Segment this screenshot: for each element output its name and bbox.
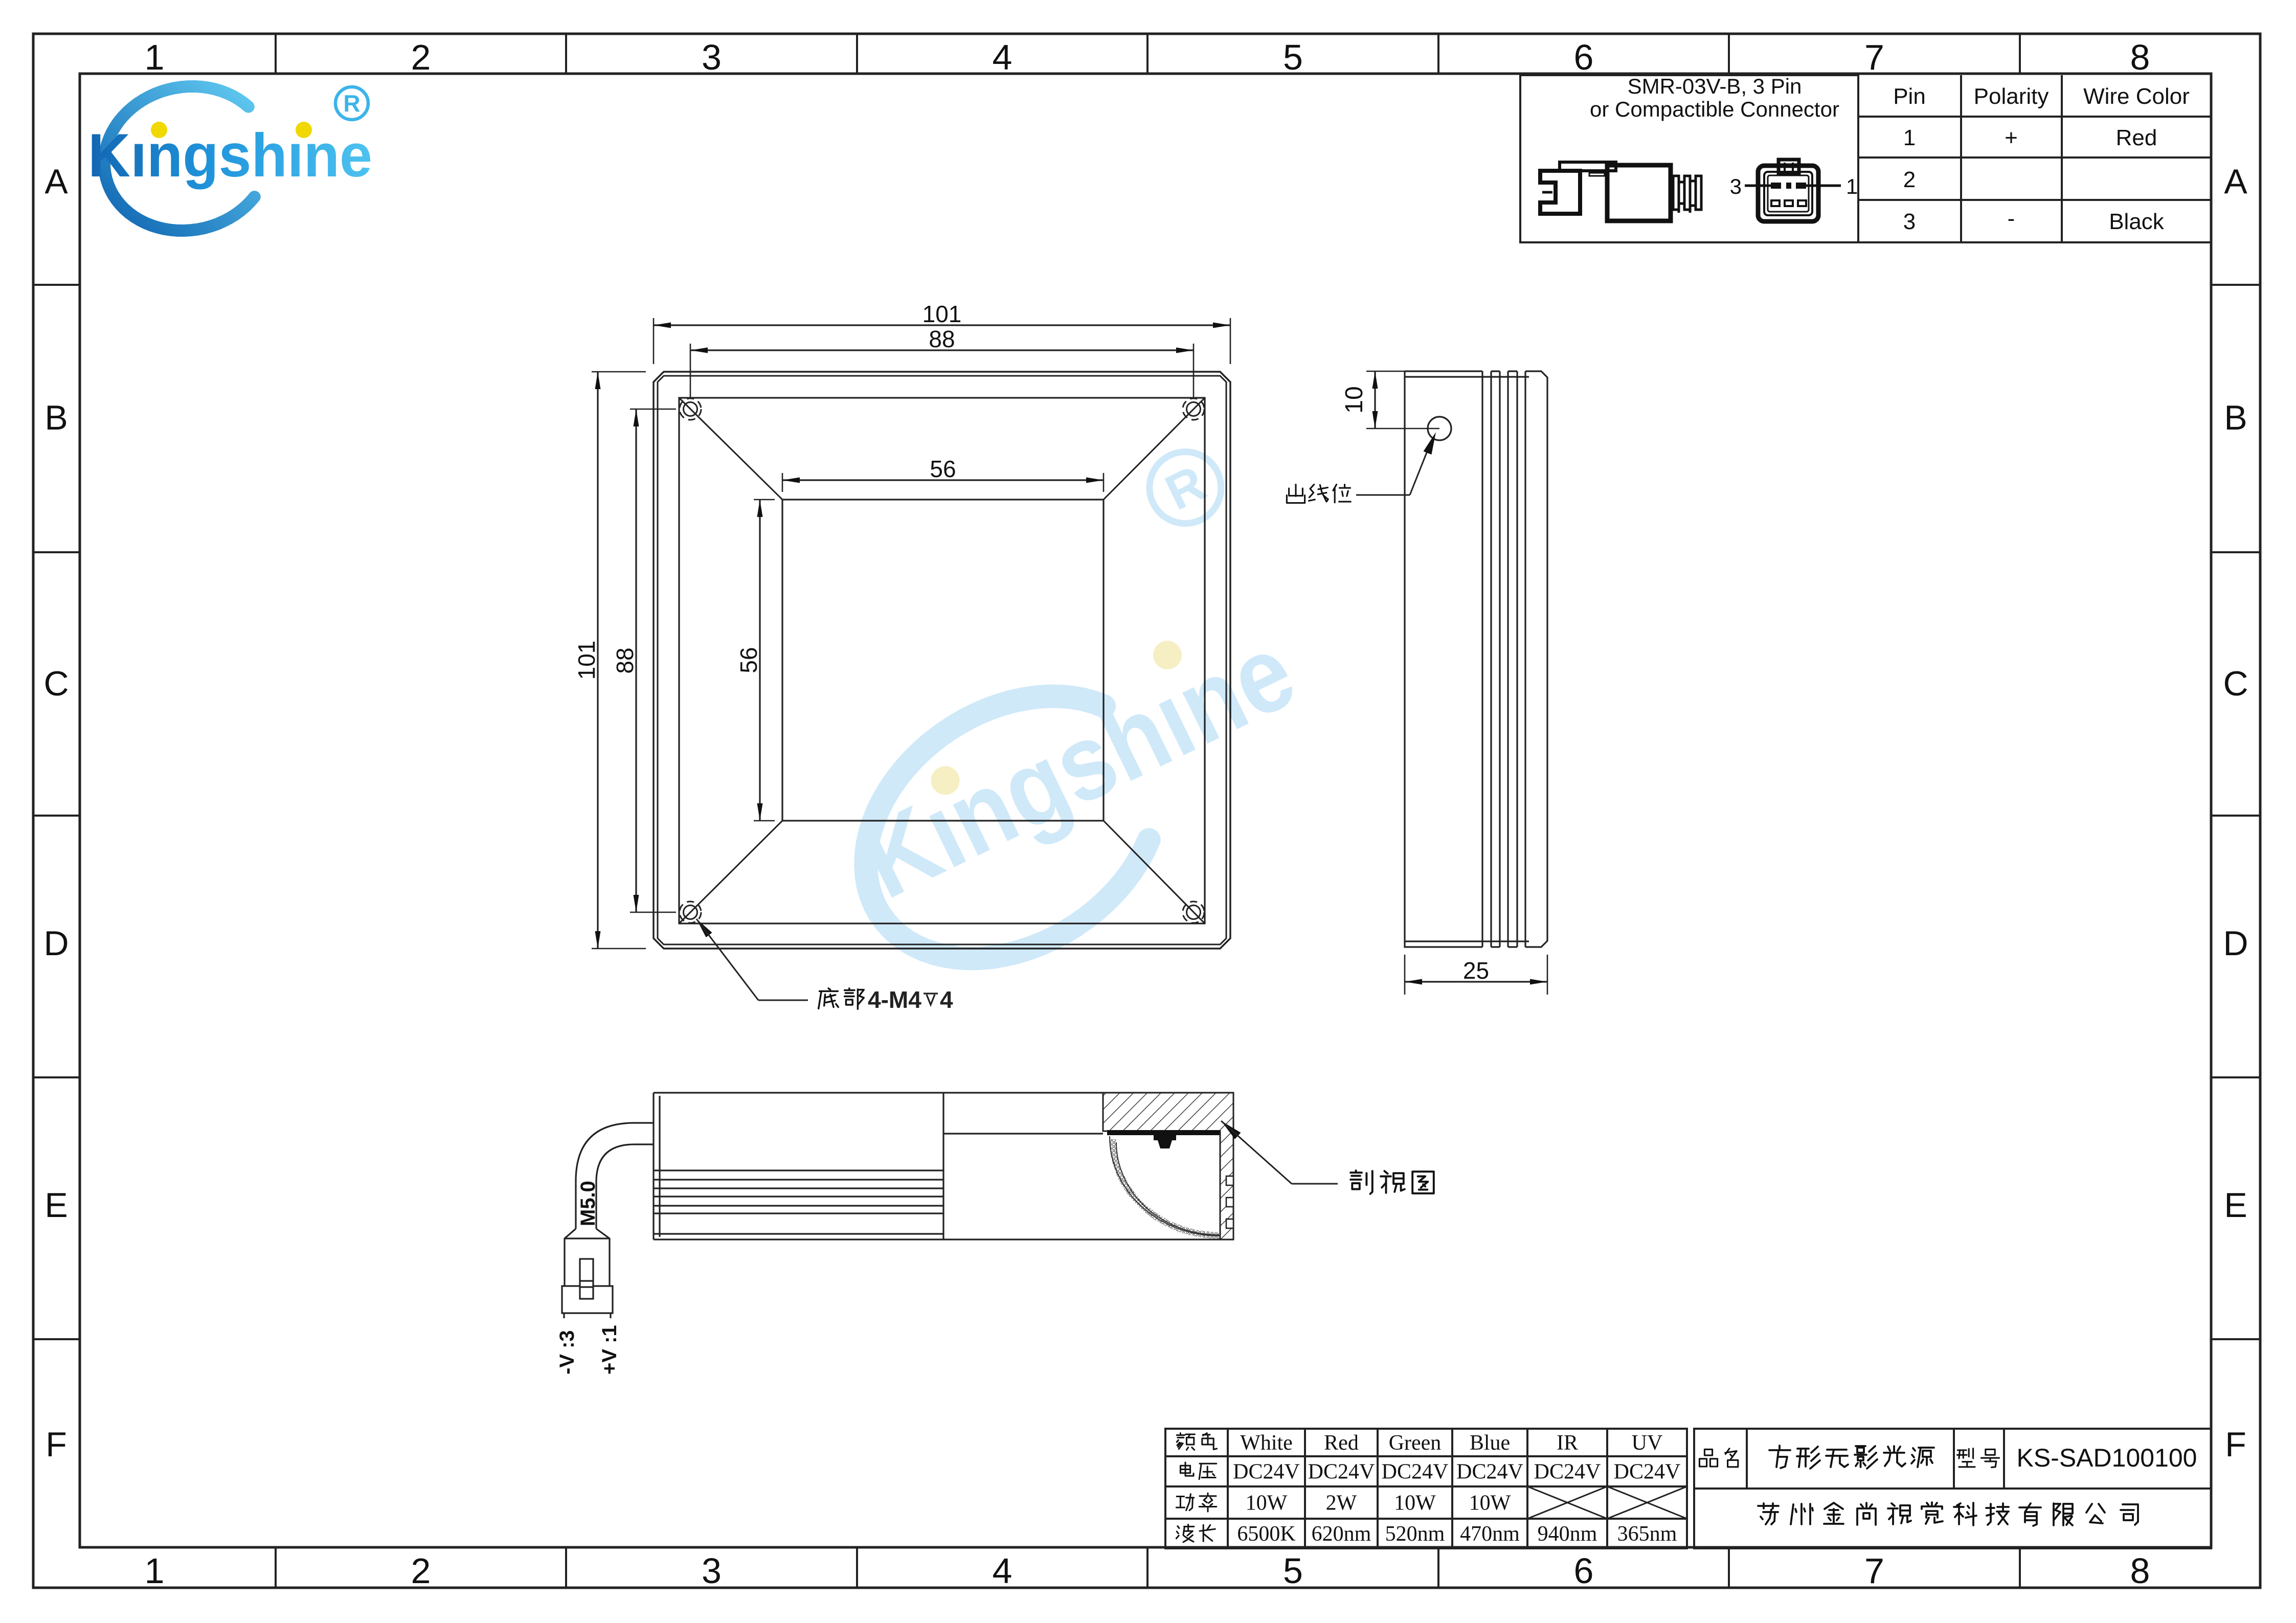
svg-text:Blue: Blue [1470, 1431, 1510, 1455]
svg-text:10W: 10W [1246, 1492, 1288, 1515]
svg-text:D: D [2223, 924, 2248, 963]
svg-text:Wire Color: Wire Color [2083, 84, 2190, 109]
svg-text:Kıngshıne: Kıngshıne [88, 121, 372, 190]
svg-text:Pin: Pin [1893, 84, 1926, 109]
svg-text:SMR-03V-B, 3 Pin: SMR-03V-B, 3 Pin [1628, 74, 1802, 98]
svg-text:D: D [43, 924, 69, 963]
svg-text:Polarity: Polarity [1974, 84, 2049, 109]
svg-text:IR: IR [1557, 1431, 1578, 1455]
svg-text:Black: Black [2109, 209, 2165, 234]
svg-text:88: 88 [612, 647, 638, 673]
svg-text:6: 6 [1574, 1551, 1594, 1591]
svg-text:365nm: 365nm [1617, 1522, 1677, 1546]
svg-text:56: 56 [735, 647, 762, 673]
svg-text:Red: Red [2116, 125, 2157, 150]
svg-text:7: 7 [1864, 37, 1884, 77]
svg-text:DC24V: DC24V [1534, 1460, 1601, 1484]
svg-text:KS-SAD100100: KS-SAD100100 [2016, 1444, 2197, 1472]
svg-text:2: 2 [411, 37, 431, 77]
svg-text:8: 8 [2130, 37, 2150, 77]
svg-text:DC24V: DC24V [1456, 1460, 1523, 1484]
svg-text:-: - [2008, 206, 2015, 231]
svg-text:6: 6 [1574, 37, 1594, 77]
svg-text:White: White [1240, 1431, 1293, 1455]
svg-text:470nm: 470nm [1460, 1522, 1520, 1546]
svg-text:4: 4 [993, 1551, 1012, 1591]
svg-text:Green: Green [1389, 1431, 1442, 1455]
svg-text:620nm: 620nm [1312, 1522, 1371, 1546]
svg-text:Red: Red [1324, 1431, 1359, 1455]
svg-text:A: A [2224, 162, 2247, 201]
svg-text:UV: UV [1632, 1431, 1663, 1455]
svg-text:E: E [44, 1186, 67, 1225]
svg-text:C: C [43, 664, 69, 703]
svg-text:C: C [2223, 664, 2248, 703]
svg-text:DC24V: DC24V [1233, 1460, 1300, 1484]
svg-text:R: R [343, 90, 360, 117]
svg-text:88: 88 [929, 326, 955, 352]
svg-text:+V :1: +V :1 [598, 1325, 621, 1374]
svg-text:25: 25 [1463, 957, 1489, 984]
svg-text:3: 3 [1730, 174, 1742, 198]
svg-text:8: 8 [2130, 1551, 2150, 1591]
svg-text:+: + [2005, 125, 2018, 150]
svg-text:1: 1 [145, 1551, 165, 1591]
svg-text:3: 3 [702, 1551, 722, 1591]
svg-text:1: 1 [145, 37, 165, 77]
svg-text:4: 4 [993, 37, 1012, 77]
svg-text:2: 2 [411, 1551, 431, 1591]
svg-text:10: 10 [1341, 386, 1368, 413]
svg-text:F: F [2225, 1425, 2246, 1464]
svg-text:7: 7 [1864, 1551, 1884, 1591]
svg-text:10W: 10W [1469, 1492, 1511, 1515]
svg-text:-V :3: -V :3 [556, 1330, 578, 1374]
svg-text:DC24V: DC24V [1308, 1460, 1375, 1484]
svg-text:101: 101 [573, 641, 600, 680]
svg-text:2: 2 [1903, 167, 1916, 192]
svg-text:6500K: 6500K [1237, 1522, 1295, 1546]
svg-text:M5.0: M5.0 [577, 1181, 599, 1226]
svg-text:940nm: 940nm [1538, 1522, 1597, 1546]
svg-text:3: 3 [702, 37, 722, 77]
svg-text:3: 3 [1903, 209, 1916, 234]
svg-text:DC24V: DC24V [1382, 1460, 1449, 1484]
svg-text:A: A [44, 162, 68, 201]
svg-text:E: E [2224, 1186, 2247, 1225]
svg-text:2W: 2W [1326, 1492, 1357, 1515]
svg-text:1: 1 [1846, 174, 1858, 198]
svg-text:B: B [44, 398, 67, 437]
svg-text:B: B [2224, 398, 2247, 437]
svg-text:10W: 10W [1394, 1492, 1436, 1515]
svg-text:4: 4 [940, 986, 953, 1013]
svg-text:F: F [46, 1425, 67, 1464]
svg-text:520nm: 520nm [1385, 1522, 1445, 1546]
svg-text:5: 5 [1283, 37, 1303, 77]
svg-text:DC24V: DC24V [1614, 1460, 1681, 1484]
svg-text:101: 101 [922, 301, 962, 327]
svg-text:56: 56 [930, 456, 956, 482]
svg-text:5: 5 [1283, 1551, 1303, 1591]
svg-text:or Compactible Connector: or Compactible Connector [1590, 97, 1839, 121]
svg-text:1: 1 [1903, 125, 1916, 150]
svg-text:4-M4: 4-M4 [868, 986, 921, 1013]
